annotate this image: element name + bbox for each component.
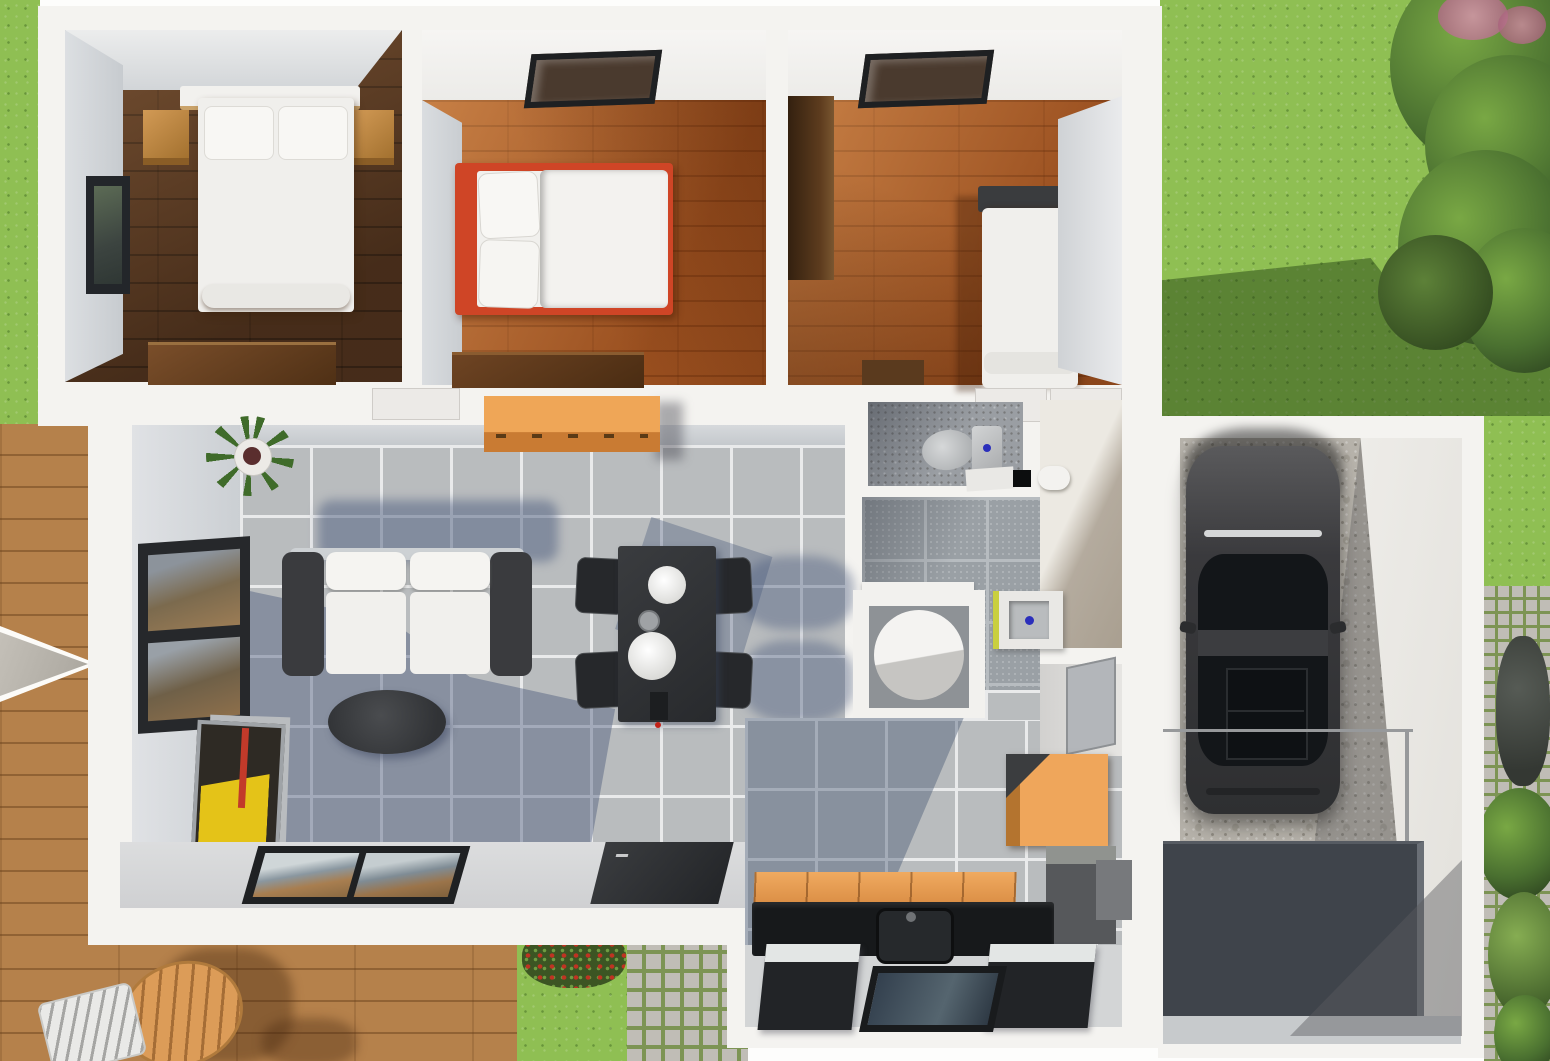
sliding-door-glass (253, 853, 360, 897)
bedroom-3-wall-face-right (1058, 96, 1122, 385)
front-door (590, 842, 733, 904)
plate (628, 632, 676, 680)
wall-basin (1038, 466, 1070, 490)
coffee-table (328, 690, 446, 754)
car-sunroof-divider (1226, 710, 1304, 712)
car-roof-band (1198, 630, 1328, 656)
pillow (478, 239, 540, 309)
lawn-right-strip (1484, 416, 1550, 588)
duvet (540, 170, 668, 308)
sofa-back-cushion (410, 552, 490, 590)
nightstand-left (143, 110, 189, 165)
wall-panel (1066, 657, 1116, 756)
step-wood (862, 360, 924, 385)
sofa-seat-cushion (326, 592, 406, 674)
plate (648, 566, 686, 604)
skylight (858, 50, 994, 108)
basin-drain (1025, 616, 1034, 625)
door-leaf (372, 388, 460, 420)
window-glass (94, 186, 122, 284)
pillow (278, 106, 348, 160)
wc-shelf (965, 466, 1014, 491)
path-rock (1496, 636, 1550, 786)
desk (452, 352, 644, 388)
sofa-back-cushion (326, 552, 406, 590)
duvet-roll (202, 284, 350, 308)
window-glass (148, 549, 240, 631)
car-roof-rack (1204, 530, 1322, 537)
wardrobe (788, 96, 834, 280)
nightstand-right (352, 110, 394, 165)
round-shower (874, 610, 964, 700)
grey-appliance-small (1096, 860, 1132, 920)
sliding-door-glass (354, 853, 461, 897)
faucet (906, 912, 916, 922)
shelf-niche (1013, 470, 1031, 487)
glass-railing-rail (1163, 729, 1413, 732)
car-sunroof (1226, 668, 1308, 760)
floor-glass-hatch (859, 966, 1007, 1032)
sideboard (484, 396, 660, 452)
skylight (524, 50, 662, 109)
patio-shadow (262, 1018, 357, 1061)
small-bowl (638, 610, 660, 632)
shrub (1378, 235, 1493, 350)
plant-soil (243, 447, 261, 465)
door-handle (616, 854, 629, 857)
sideboard-handles (496, 434, 648, 438)
bed-shadow (956, 196, 984, 392)
floorplan-render (0, 0, 1550, 1061)
blossom-pink (1498, 6, 1546, 44)
shrub (1478, 788, 1550, 900)
sofa-armrest (282, 552, 324, 676)
pillow (204, 106, 274, 160)
chair-shadow (742, 640, 854, 722)
dresser (148, 342, 336, 385)
chair-shadow (742, 556, 854, 630)
window-glass (148, 637, 240, 721)
candle-holder (650, 692, 668, 720)
lawn-left-strip (0, 0, 40, 430)
car-front-trim (1206, 788, 1320, 795)
candle-flame (655, 722, 661, 728)
pillow (477, 170, 540, 239)
sofa-seat-cushion (410, 592, 490, 674)
flush-button (983, 444, 991, 452)
island-unit-left (757, 944, 860, 1030)
sofa-armrest (490, 552, 532, 676)
